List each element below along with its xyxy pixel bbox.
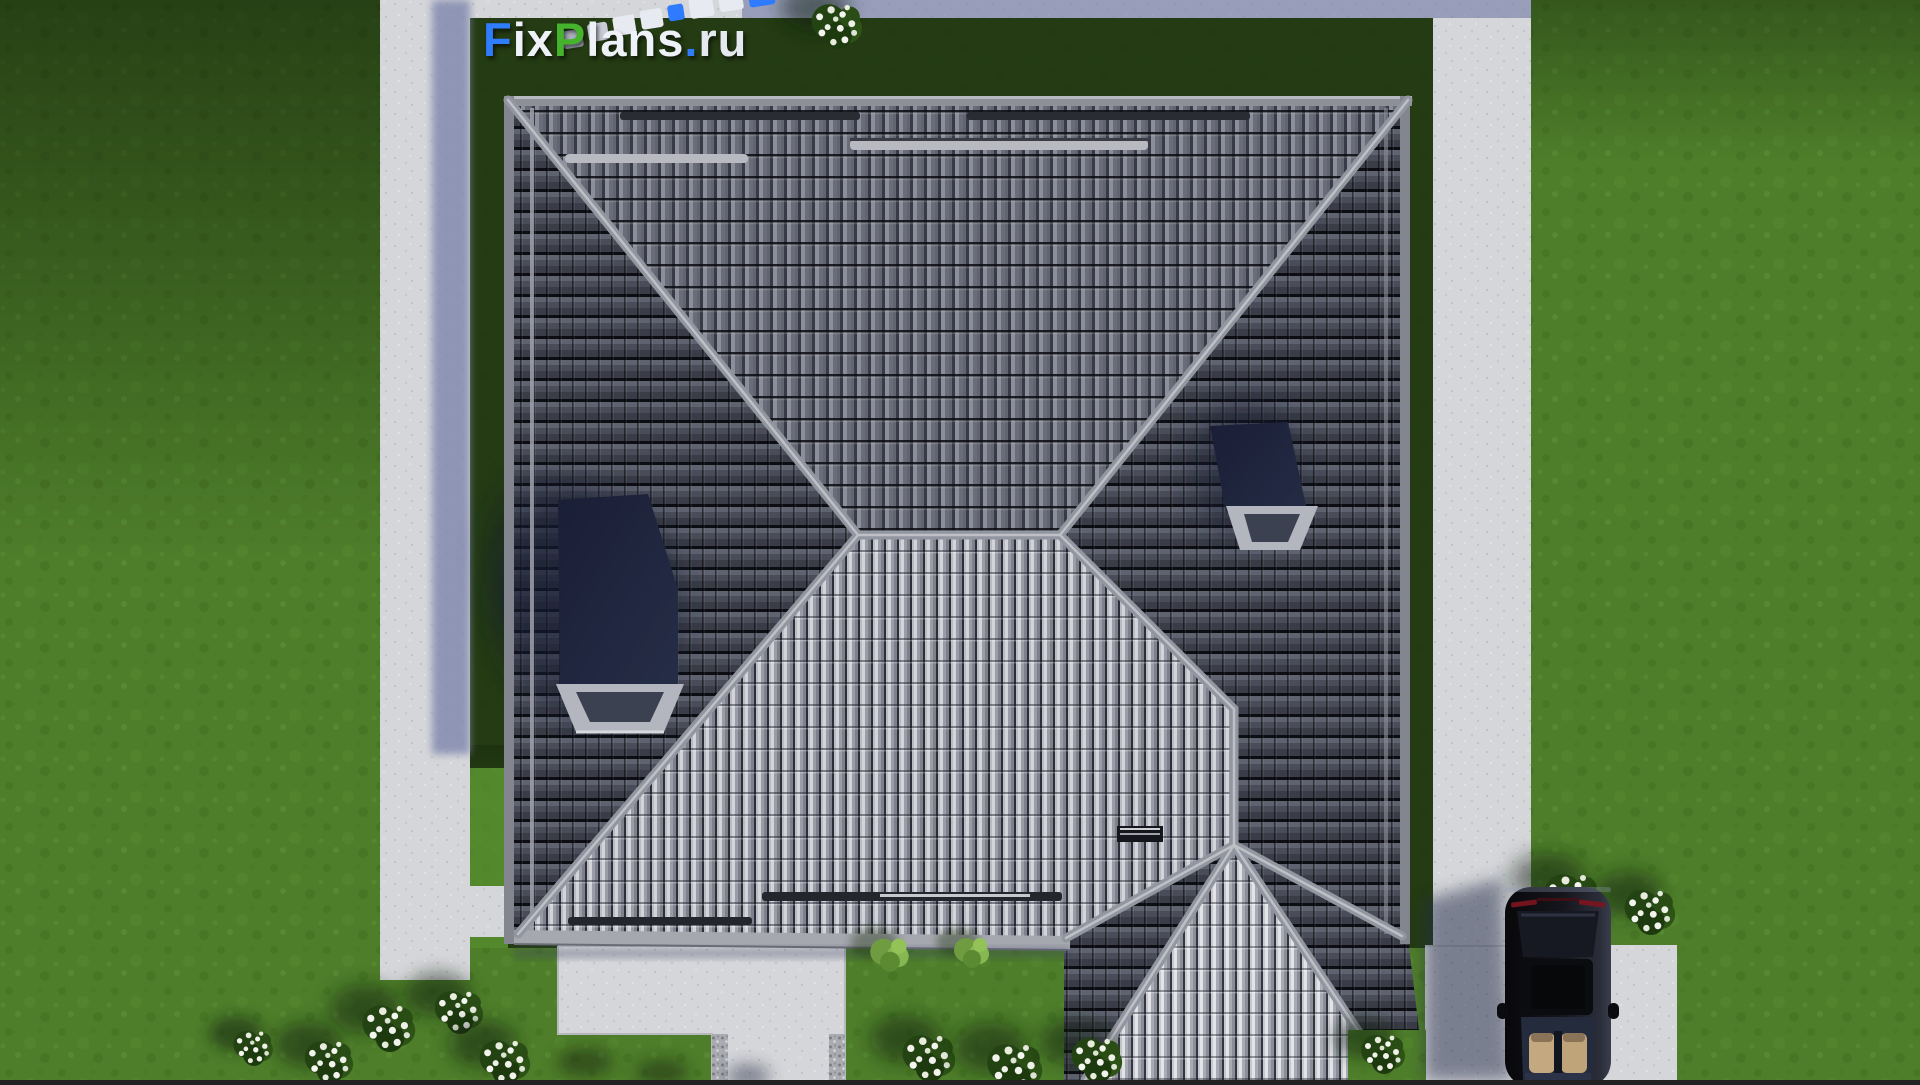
- skylight-frame-inner: [576, 692, 664, 722]
- car-console: [1554, 1031, 1562, 1077]
- house-shadow-on-walkway: [432, 0, 470, 754]
- gutter-line-right: [1384, 108, 1388, 934]
- house-shadow-on-top-walkway: [742, 0, 1531, 18]
- car-mirror-left: [1497, 1003, 1508, 1019]
- snow-guard-bar: [620, 112, 860, 120]
- car-headrest: [1531, 1033, 1553, 1042]
- grass-shade-top-right: [1531, 0, 1920, 160]
- car-dash: [1525, 1073, 1591, 1080]
- car-headrest: [1563, 1033, 1585, 1042]
- watermark-segment: ix: [513, 13, 554, 66]
- snow-guard-bar: [967, 112, 1250, 120]
- snow-guard-highlight: [880, 894, 1030, 897]
- scene-render: FixPlans.ru: [0, 0, 1920, 1085]
- watermark-segment: F: [483, 13, 513, 66]
- gravel-border: [829, 1034, 845, 1080]
- watermark-segment: ru: [698, 13, 747, 66]
- car-rear-window: [1517, 911, 1599, 957]
- roof-vent: [1117, 826, 1163, 842]
- gravel-border: [712, 1034, 728, 1080]
- watermark-logo: FixPlans.ru: [483, 16, 747, 63]
- watermark-segment: P: [554, 13, 586, 66]
- car-rim-light: [1505, 887, 1611, 892]
- car-mirror-right: [1608, 1003, 1619, 1019]
- snow-guard-shadow: [850, 138, 1148, 141]
- watermark-segment: lans: [586, 13, 684, 66]
- car-sunroof: [1531, 965, 1585, 1009]
- snow-guard-bar: [850, 140, 1148, 150]
- shrub-shadow: [557, 1048, 613, 1076]
- snow-guard-bar: [565, 154, 748, 163]
- eave-left: [504, 96, 514, 944]
- car-shadow: [1425, 878, 1512, 1080]
- watermark-segment: .: [684, 13, 698, 66]
- eave-right: [1400, 96, 1410, 944]
- gutter-line-left: [530, 108, 534, 934]
- car-tail-strip: [1537, 898, 1579, 901]
- eave-top-highlight: [506, 96, 1412, 99]
- tree-shadow-overlay: [0, 0, 382, 560]
- snow-guard-bar: [568, 917, 752, 925]
- car: [1425, 878, 1619, 1080]
